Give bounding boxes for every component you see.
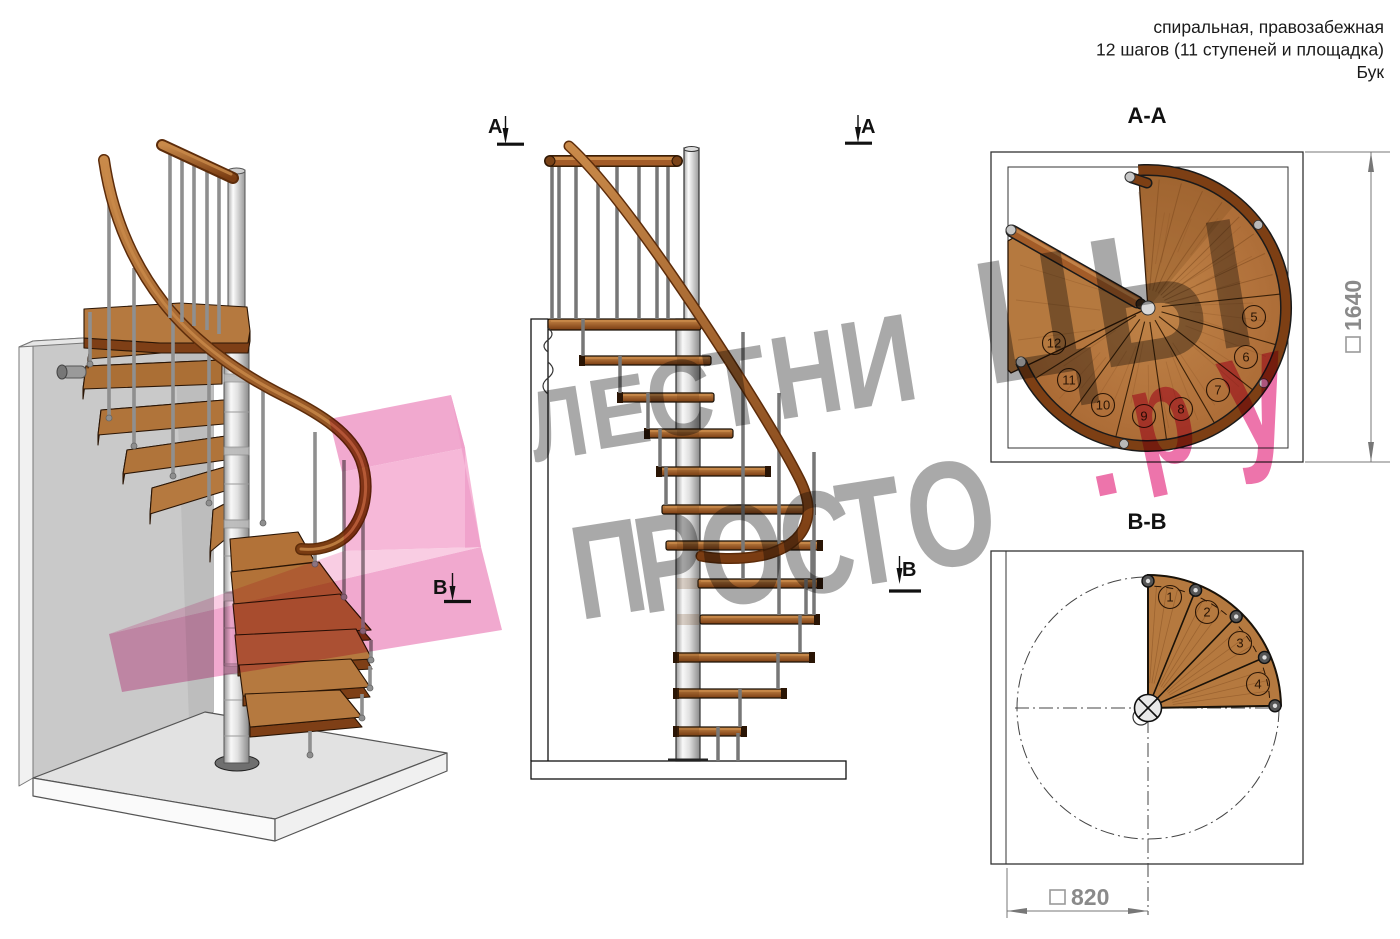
svg-text:12 шагов (11 ступеней и площад: 12 шагов (11 ступеней и площадка) xyxy=(1096,40,1384,60)
svg-text:4: 4 xyxy=(1254,677,1261,692)
svg-text:A-A: A-A xyxy=(1127,103,1166,128)
svg-text:Бук: Бук xyxy=(1356,62,1384,82)
svg-text:3: 3 xyxy=(1236,636,1243,651)
svg-text:спиральная, правозабежная: спиральная, правозабежная xyxy=(1153,17,1384,37)
svg-text:B: B xyxy=(433,577,447,599)
svg-text:B-B: B-B xyxy=(1127,509,1166,534)
svg-text:1640: 1640 xyxy=(1340,280,1366,331)
svg-text:2: 2 xyxy=(1203,605,1210,620)
svg-text:A: A xyxy=(488,116,502,138)
svg-text:820: 820 xyxy=(1071,884,1109,910)
svg-text:1: 1 xyxy=(1166,590,1173,605)
svg-text:A: A xyxy=(861,116,875,138)
